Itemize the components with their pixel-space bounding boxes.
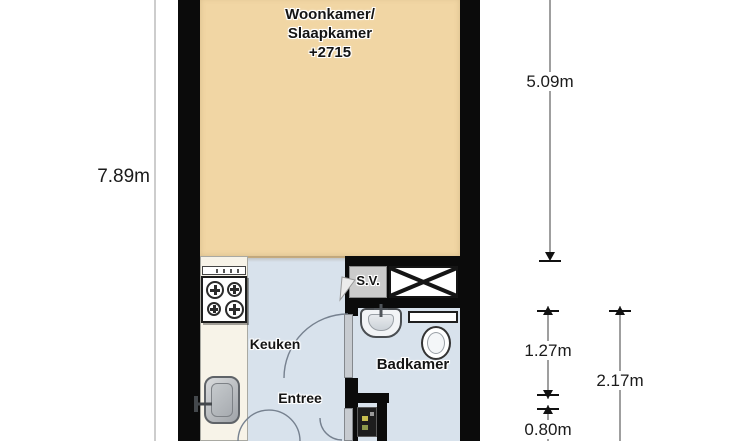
meter-indicator	[362, 425, 368, 430]
shaft-wall-block: S.V.	[345, 256, 480, 308]
dimension-value: 5.09m	[524, 72, 575, 91]
bathroom-door-leaf	[344, 314, 353, 378]
stove-icon	[201, 276, 247, 323]
right-outer-wall	[460, 0, 480, 441]
dimension-line-living	[539, 0, 561, 261]
dimension-value: 1.27m	[522, 341, 573, 360]
dimension-total-left-label: 7.89m	[78, 166, 150, 188]
living-bedroom-label-line1: Woonkamer/	[200, 5, 460, 24]
kitchen-sink-icon	[204, 376, 240, 424]
meter-indicator	[370, 412, 374, 416]
entry-label: Entree	[240, 390, 360, 406]
stove-burner	[207, 302, 221, 316]
stove-control-strip	[202, 266, 246, 275]
toilet-icon	[421, 326, 451, 360]
living-bedroom-label: Woonkamer/ Slaapkamer +2715	[200, 5, 460, 62]
living-bedroom-label-line3: +2715	[200, 43, 460, 62]
shaft-label: S.V.	[349, 273, 387, 288]
meter-panel-icon	[357, 407, 377, 437]
service-shaft-box: S.V.	[349, 266, 387, 298]
toilet-cistern	[408, 311, 458, 323]
entry-door-leaf	[344, 408, 353, 441]
living-bedroom-label-line2: Slaapkamer	[200, 24, 460, 43]
washbasin-icon	[360, 308, 402, 338]
washbasin-bowl	[368, 314, 394, 331]
dimension-bath-lower-label: 0.80m	[516, 420, 580, 440]
meter-indicator	[362, 416, 368, 421]
dimension-bath-total-label: 2.17m	[588, 371, 652, 391]
crossed-shaft-box	[389, 266, 458, 298]
bathroom-label: Badkamer	[353, 356, 473, 373]
dimension-value: 2.17m	[594, 371, 645, 390]
dimension-living-label: 5.09m	[518, 72, 582, 92]
toilet-seat	[427, 332, 445, 354]
floorplan-canvas: S.V.	[0, 0, 750, 441]
stove-burner	[206, 281, 224, 299]
stove-burner	[227, 282, 242, 297]
dimension-bath-upper-label: 1.27m	[516, 341, 580, 361]
dimension-value: 0.80m	[522, 420, 573, 439]
stove-burner	[225, 300, 244, 319]
meter-cupboard-wall-right	[377, 393, 387, 441]
room-transition-shade	[248, 256, 345, 262]
sink-basin	[211, 383, 233, 417]
dimension-value: 7.89m	[97, 166, 150, 187]
kitchen-label: Keuken	[215, 336, 335, 352]
left-outer-wall	[178, 0, 200, 441]
